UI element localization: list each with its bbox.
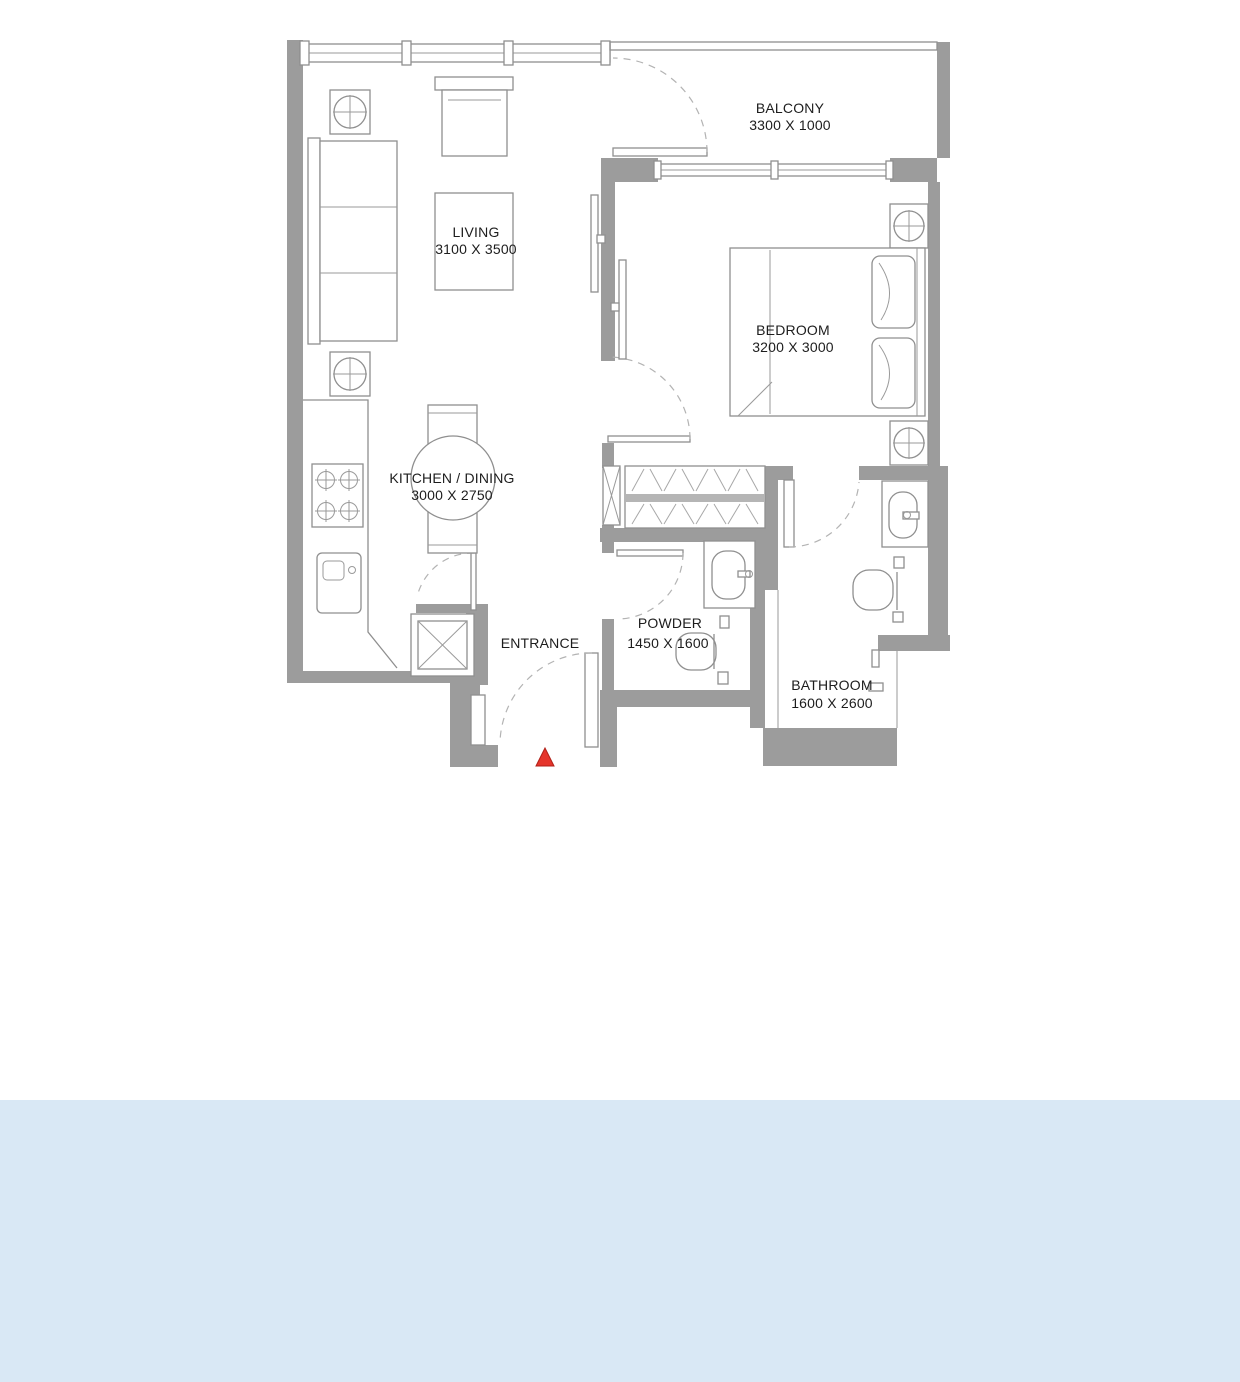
bathroom-door [784, 480, 859, 547]
entrance-door [471, 653, 598, 747]
room-label-kitchen: KITCHEN / DINING [389, 470, 514, 486]
window-wall-top [300, 41, 610, 65]
side-table-lamp-top [330, 90, 370, 134]
kitchen-door [417, 553, 476, 610]
nightstand-lamp-bottom [890, 421, 928, 465]
room-dims-bedroom: 3200 X 3000 [752, 339, 834, 355]
room-dims-balcony: 3300 X 1000 [749, 117, 831, 133]
bedroom-window [654, 161, 893, 179]
side-table-lamp-bottom [330, 352, 370, 396]
room-label-bathroom: BATHROOM [791, 677, 872, 693]
room-label-entrance: ENTRANCE [501, 635, 580, 651]
washer [411, 614, 474, 676]
room-dims-kitchen: 3000 X 2750 [411, 487, 493, 503]
wardrobe-closet [625, 466, 765, 528]
nightstand-lamp-top [890, 204, 928, 248]
room-label-living: LIVING [452, 224, 499, 240]
kitchen-sink [317, 553, 361, 613]
balcony-balustrade [610, 42, 937, 50]
sofa [308, 138, 397, 344]
brochure-page: BALCONY 3300 X 1000 LIVING 3100 X 3500 B… [0, 0, 1240, 1382]
info-panel: 1 BEDROOM APARTMENT TYPE A (with powder … [0, 1100, 1240, 1382]
bedroom-door [608, 357, 690, 442]
armchair [435, 77, 513, 156]
bathroom-sink [882, 481, 928, 547]
room-label-bedroom: BEDROOM [756, 322, 830, 338]
stove [312, 464, 363, 527]
kitchen-counter [303, 400, 397, 668]
room-dims-living: 3100 X 3500 [435, 241, 517, 257]
floor-plan: BALCONY 3300 X 1000 LIVING 3100 X 3500 B… [0, 0, 1240, 1100]
room-dims-bathroom: 1600 X 2600 [791, 695, 873, 711]
balcony-door [613, 58, 707, 156]
powder-door [617, 550, 683, 619]
powder-sink [704, 541, 755, 608]
bathroom-toilet [853, 557, 904, 622]
room-label-powder: POWDER [638, 615, 702, 631]
entrance-direction-marker [536, 748, 554, 766]
linen-cabinet [603, 466, 620, 525]
room-dims-powder: 1450 X 1600 [627, 635, 709, 651]
room-label-balcony: BALCONY [756, 100, 825, 116]
